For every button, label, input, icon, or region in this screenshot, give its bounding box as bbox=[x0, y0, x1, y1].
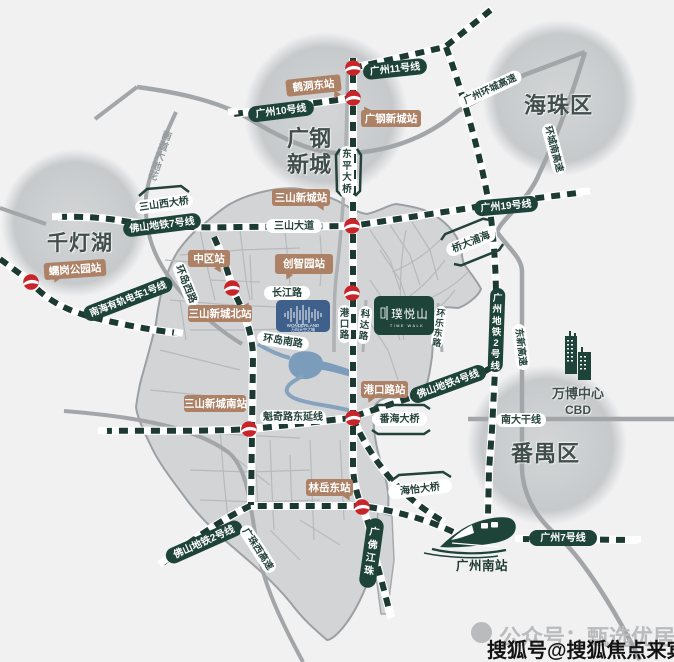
svg-text:璞悦山: 璞悦山 bbox=[391, 307, 429, 321]
svg-text:万科天空之城: 万科天空之城 bbox=[291, 326, 315, 332]
svg-text:TIME WALK: TIME WALK bbox=[390, 324, 424, 328]
